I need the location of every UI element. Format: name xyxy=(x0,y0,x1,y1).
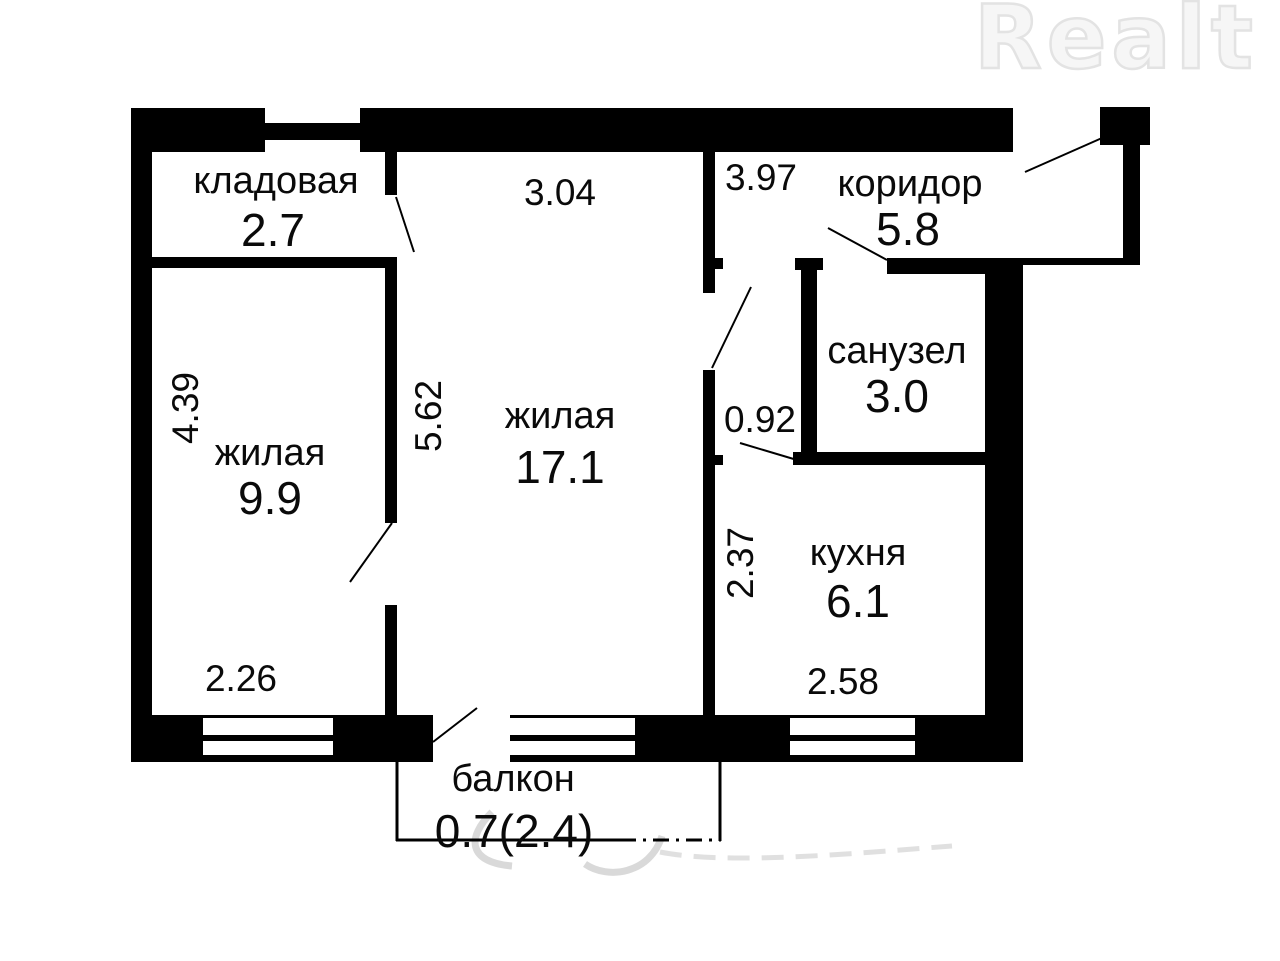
wall-segment-top-niche xyxy=(265,123,360,140)
room-label-kuhnya: кухня xyxy=(810,532,907,574)
wall-segment-top-a xyxy=(131,108,265,152)
wall-segment-right xyxy=(985,265,1023,762)
watermark-tail xyxy=(660,846,952,858)
dim-zhilaya1-width: 2.26 xyxy=(205,658,277,699)
room-label-balkon: балкон xyxy=(451,758,574,800)
wall-segment-corridor-bottom xyxy=(985,258,1137,265)
wall-center-jamb-1 xyxy=(715,258,723,269)
door-leader-kuhnya xyxy=(740,443,797,460)
openings xyxy=(203,715,915,762)
dim-kuhnya-height: 2.37 xyxy=(720,527,761,599)
wall-segment-top-b xyxy=(360,108,1013,152)
dim-zhilaya2-height: 5.62 xyxy=(408,380,449,452)
wall-kladovaya-bottom xyxy=(152,257,385,268)
wall-sanuzel-top xyxy=(887,258,985,274)
wall-kitchen-top xyxy=(793,452,985,465)
room-label-sanuzel: санузел xyxy=(827,330,966,372)
window-zhilaya-1-midline xyxy=(203,735,333,741)
room-area-kladovaya: 2.7 xyxy=(241,204,305,256)
realt-logo: Realt xyxy=(974,0,1258,89)
window-kuhnya-midline xyxy=(790,735,915,741)
room-area-zhilaya-1: 9.9 xyxy=(238,472,302,524)
door-swing-entrance xyxy=(1025,138,1102,172)
room-label-kladovaya: кладовая xyxy=(193,160,358,202)
wall-center-2 xyxy=(703,370,715,715)
wall-segment-entry-right xyxy=(1123,145,1140,265)
room-label-koridor: коридор xyxy=(838,163,983,205)
door-swing-hall xyxy=(712,287,751,368)
dim-zhilaya1-height: 4.39 xyxy=(165,372,206,444)
room-area-koridor: 5.8 xyxy=(876,203,940,255)
wall-center-jamb-2 xyxy=(715,455,723,465)
window-zhilaya-2-midline xyxy=(510,735,635,741)
wall-mid-left-3 xyxy=(385,605,397,715)
room-area-balkon: 0.7(2.4) xyxy=(435,805,594,857)
dim-koridor-width: 3.97 xyxy=(725,157,797,198)
door-swing-kladovaya xyxy=(396,197,414,252)
floor-plan-svg: кладовая 2.7 жилая 9.9 жилая 17.1 коридо… xyxy=(0,0,1280,961)
dim-kuhnya-width: 2.58 xyxy=(807,661,879,702)
room-area-sanuzel: 3.0 xyxy=(865,370,929,422)
wall-mid-left-1 xyxy=(385,152,397,195)
wall-segment-entry-pillar xyxy=(1100,107,1150,145)
room-area-zhilaya-2: 17.1 xyxy=(515,441,605,493)
room-area-kuhnya: 6.1 xyxy=(826,575,890,627)
room-label-zhilaya-1: жилая xyxy=(215,432,326,474)
balcony-door-opening xyxy=(433,715,510,762)
page: Realt xyxy=(0,0,1280,961)
wall-segment-left xyxy=(131,108,152,762)
dim-nook-width: 0.92 xyxy=(724,399,796,440)
wall-mid-left-2 xyxy=(385,257,397,523)
room-label-zhilaya-2: жилая xyxy=(505,395,616,437)
wall-sanuzel-left xyxy=(801,258,817,452)
door-swing-zhilaya-1 xyxy=(350,523,392,582)
wall-center-1 xyxy=(703,152,715,293)
dim-zhilaya2-width: 3.04 xyxy=(524,172,596,213)
